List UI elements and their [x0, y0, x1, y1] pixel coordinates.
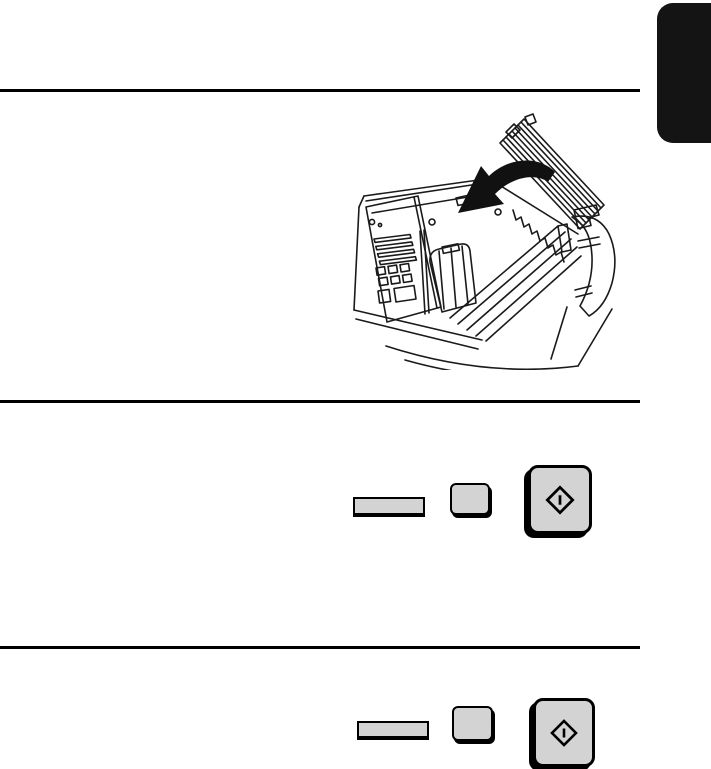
selector-key-graphic [450, 483, 490, 515]
close-cover-illustration [350, 110, 635, 370]
start-key-graphic [533, 698, 595, 767]
cover-latch [525, 114, 536, 125]
chapter-index-tab [657, 3, 711, 143]
section-divider-middle [0, 400, 640, 403]
start-diamond-icon [541, 481, 579, 519]
section-divider-bottom [0, 646, 640, 649]
start-key-graphic [528, 465, 592, 534]
selector-key-graphic [452, 706, 493, 741]
function-key-graphic [357, 721, 429, 740]
right-side-flap [572, 216, 615, 316]
start-diamond-icon [546, 715, 582, 751]
manual-page [0, 0, 711, 769]
function-key-graphic [353, 497, 425, 517]
section-divider-top [0, 89, 640, 92]
